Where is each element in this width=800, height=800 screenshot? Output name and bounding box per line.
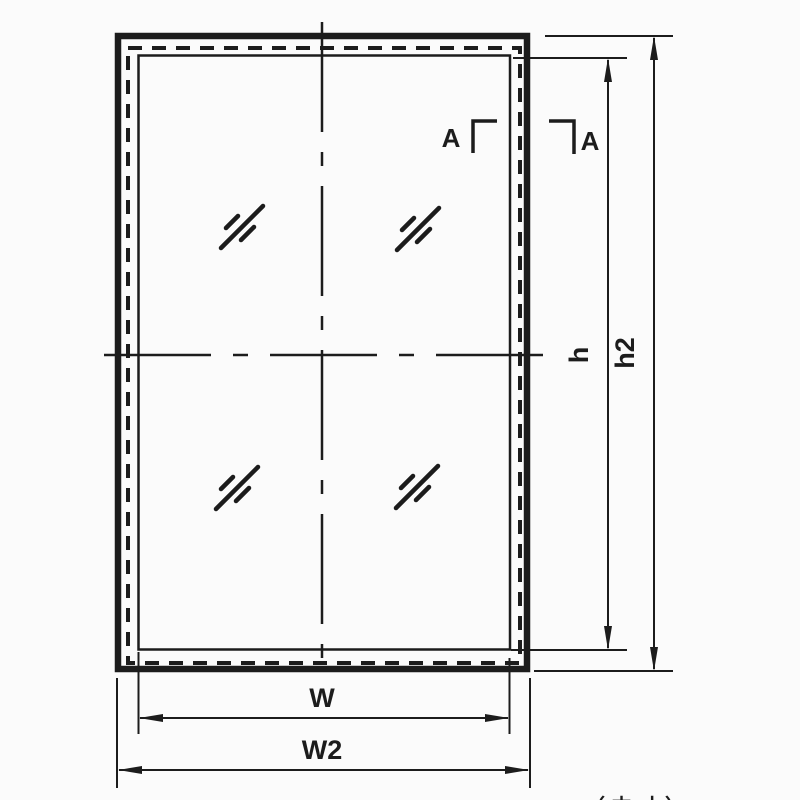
window-elevation-drawing: A A h h2 W — [0, 0, 800, 800]
glass-mark-top-right — [397, 208, 439, 250]
technical-drawing-canvas: A A h h2 W — [0, 0, 800, 800]
w-arrow-right — [485, 714, 509, 722]
glass-mark-bottom-left — [216, 467, 258, 509]
section-label-left: A — [442, 123, 461, 153]
w2-arrow-right — [505, 766, 529, 774]
w2-arrow-left — [118, 766, 142, 774]
h2-arrow-up — [650, 36, 658, 60]
dimension-outer-height: h2 — [534, 36, 673, 671]
h-arrow-down — [604, 626, 612, 650]
h-dimension-label: h — [564, 347, 594, 364]
glass-marks — [216, 206, 439, 509]
h2-dimension-label: h2 — [610, 337, 640, 369]
glass-mark-top-left — [221, 206, 263, 248]
h-arrow-up — [604, 58, 612, 82]
h2-arrow-down — [650, 647, 658, 671]
section-bracket-right — [549, 121, 574, 154]
glass-mark-bottom-right — [396, 466, 438, 508]
w2-dimension-label: W2 — [302, 735, 343, 765]
section-bracket-left — [473, 121, 497, 153]
w-dimension-label: W — [309, 683, 335, 713]
clipped-bottom-note: （内寸） — [584, 791, 784, 800]
w-arrow-left — [139, 714, 163, 722]
section-label-right: A — [581, 126, 600, 156]
